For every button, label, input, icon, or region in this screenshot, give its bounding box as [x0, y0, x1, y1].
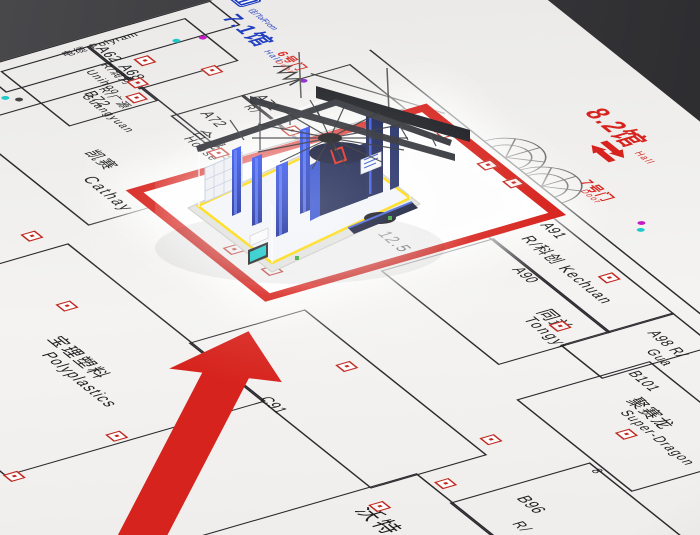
- exhibition-map-view: 往/To/From 7.1馆 Hall 6号门 Door 8.2馆 Hall 7…: [0, 0, 700, 535]
- booth-navy-tower-2: [390, 122, 399, 190]
- highlighted-booth-3d[interactable]: [155, 45, 485, 295]
- booth-green-accent: [295, 256, 299, 260]
- booth-green-accent: [388, 216, 392, 220]
- booth-stage-left-face: [310, 160, 320, 221]
- booth-tower-stripe: [369, 116, 372, 194]
